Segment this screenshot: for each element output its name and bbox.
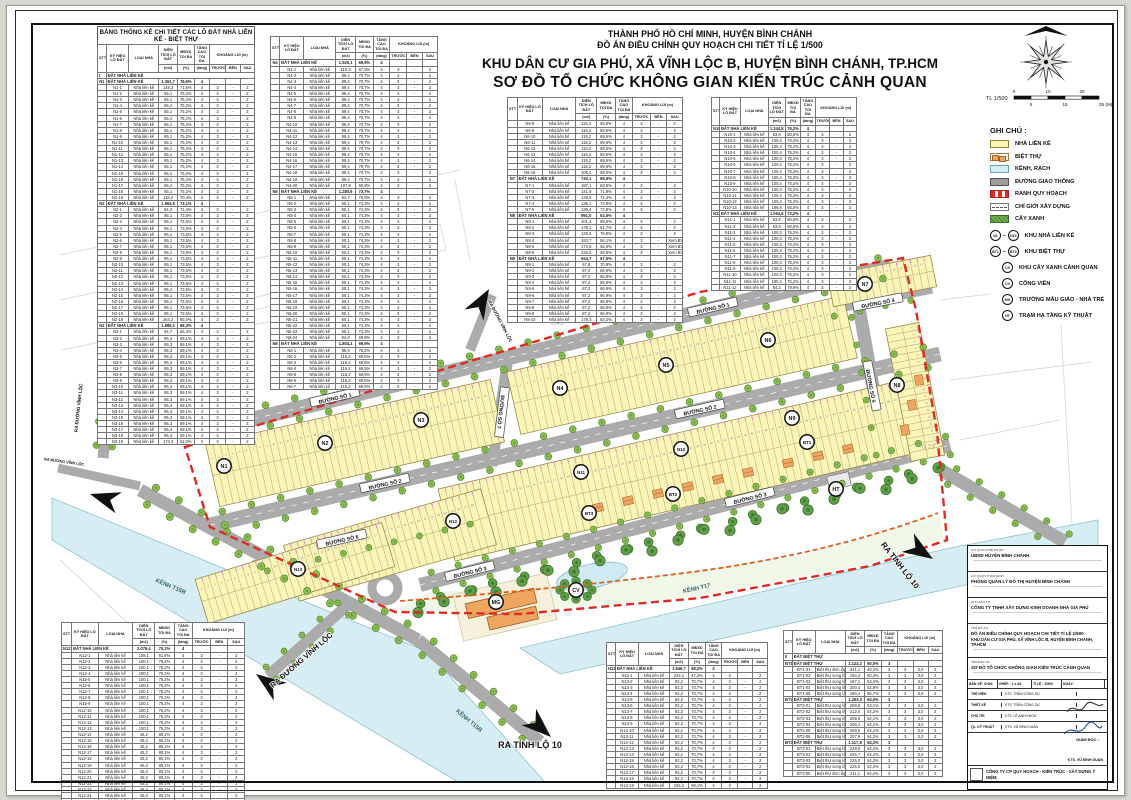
tree-icon: [219, 508, 226, 515]
legend-item-label: NHÀ LIÊN KẾ: [1015, 141, 1051, 147]
legend-badge-item: HTTRẠM HẠ TẦNG KỸ THUẬT: [990, 310, 1122, 321]
tree-icon: [866, 473, 872, 479]
tree-icon: [945, 481, 951, 487]
svg-text:N9: N9: [789, 416, 796, 422]
tree-icon: [466, 353, 473, 360]
tree-icon: [646, 331, 653, 338]
tree-icon: [699, 524, 709, 534]
tree-icon: [381, 608, 388, 615]
tree-icon: [595, 545, 601, 551]
legend-item-kenh: KÊNH, RẠCH: [990, 165, 1122, 173]
tree-icon: [235, 550, 242, 557]
legend-item-chigioi: CHỈ GIỚI XÂY DỰNG: [990, 203, 1122, 211]
svg-text:0: 0: [1013, 89, 1016, 94]
svg-text:20: 20: [1079, 89, 1085, 94]
legend-item-label: ĐƯỜNG GIAO THÔNG: [1015, 179, 1074, 185]
svg-text:N11: N11: [577, 470, 585, 475]
lot-table: STTKÝ HIỆU LÔ ĐẤTLOẠI NHÀDIỆN TÍCH LÔ ĐẤ…: [711, 97, 857, 291]
tree-icon: [244, 534, 251, 541]
legend-swatch-lienke-icon: [990, 140, 1009, 148]
legend-badge-circle: MG: [1002, 294, 1013, 305]
svg-text:15: 15: [1062, 102, 1068, 107]
node-badge-N8: N8: [890, 378, 904, 392]
tree-icon: [749, 405, 756, 412]
tree-icon: [734, 310, 741, 317]
tree-icon: [633, 433, 640, 440]
fine-print-line: [973, 649, 1102, 651]
legend-badge-circle: CV: [1002, 278, 1013, 289]
tree-icon: [281, 648, 287, 654]
tree-icon: [603, 439, 610, 446]
tree-icon: [264, 568, 270, 574]
villa-house-icon: [900, 424, 910, 435]
tree-icon: [394, 467, 401, 474]
tree-icon: [499, 719, 506, 726]
tree-icon: [834, 462, 840, 468]
table-row: N11-12Nhà liên kế54,379,9%43-2: [712, 284, 857, 290]
cadastral-line: [960, 420, 1060, 440]
tree-icon: [976, 479, 982, 485]
tree-icon: [703, 516, 709, 522]
svg-text:BT1: BT1: [803, 440, 812, 445]
tree-icon: [253, 522, 260, 529]
tree-icon: [763, 303, 770, 310]
tree-icon: [803, 505, 813, 515]
svg-text:N12: N12: [449, 519, 458, 524]
tree-icon: [785, 494, 791, 500]
table-title: BẢNG THỐNG KÊ CHI TIẾT CÁC LÔ ĐẤT NHÀ LI…: [97, 26, 255, 44]
compass-rose-icon: TL 1/500 0102051525 (M): [984, 24, 1116, 114]
tree-icon: [450, 655, 457, 662]
tree-icon: [482, 446, 489, 453]
tree-icon: [143, 501, 150, 508]
tree-icon: [471, 373, 478, 380]
exit-label: RA ĐƯỜNG VĨNH LỘC: [71, 382, 83, 432]
tree-icon: [920, 459, 926, 465]
company-logo: [970, 768, 983, 781]
tree-icon: [267, 422, 274, 429]
tree-icon: [152, 484, 159, 491]
svg-text:MG: MG: [492, 600, 501, 606]
node-badge-N10: N10: [674, 442, 688, 456]
tree-icon: [370, 494, 377, 501]
tree-icon: [777, 504, 787, 514]
tree-icon: [673, 535, 683, 545]
lot-table: STTKÝ HIỆU LÔ ĐẤTLOẠI NHÀDIỆN TÍCH LÔ ĐẤ…: [783, 630, 943, 777]
tree-icon: [326, 600, 333, 607]
tree-icon: [588, 345, 595, 352]
scale-note: TL 1/500: [986, 96, 1008, 102]
legend-badge-item: CVCÔNG VIÊN: [990, 278, 1122, 289]
tree-icon: [662, 426, 669, 433]
tree-icon: [517, 576, 527, 586]
tree-icon: [282, 515, 289, 522]
tree-icon: [779, 398, 786, 405]
legend-badge-label: TRƯỜNG MẪU GIÁO - NHÀ TRẺ: [1019, 297, 1104, 303]
tree-icon: [317, 616, 323, 622]
node-badge-N6: N6: [761, 333, 775, 347]
title-block: CƠ QUAN PHÊ DUYỆTUBND HUYỆN BÌNH CHÁNHCƠ…: [967, 545, 1108, 790]
tree-icon: [583, 592, 591, 600]
tree-icon: [455, 562, 461, 568]
tree-icon: [907, 473, 917, 483]
tree-icon: [325, 408, 332, 415]
tree-icon: [198, 509, 205, 516]
tree-icon: [391, 539, 397, 545]
legend-badge-item: CXKHU CÂY XANH CẢNH QUAN: [990, 262, 1122, 273]
tree-icon: [442, 527, 448, 533]
tree-icon: [622, 537, 628, 543]
tree-icon: [221, 521, 228, 528]
tree-icon: [751, 514, 761, 524]
tree-icon: [725, 525, 735, 535]
tree-icon: [745, 385, 752, 392]
tree-icon: [354, 401, 361, 408]
header-project-name: KHU DÂN CƯ GIA PHÚ, XÃ VĨNH LỘC B, HUYỆN…: [455, 56, 965, 71]
tree-icon: [281, 575, 288, 582]
tree-icon: [858, 369, 864, 375]
tree-icon: [315, 556, 321, 562]
legend-badge-label: KHU CÂY XANH CẢNH QUAN: [1019, 265, 1098, 271]
legend-badge-circle: BT3: [1008, 246, 1019, 257]
lot-table: STTKÝ HIỆU LÔ ĐẤTLOẠI NHÀDIỆN TÍCH LÔ ĐẤ…: [507, 97, 683, 323]
tree-icon: [516, 460, 523, 467]
tree-icon: [569, 426, 576, 433]
tree-icon: [758, 502, 764, 508]
tree-icon: [800, 497, 809, 506]
tree-icon: [1066, 531, 1072, 537]
header-project-type-line: ĐỒ ÁN ĐIỀU CHỈNH QUY HOẠCH CHI TIẾT TỈ L…: [455, 40, 965, 50]
node-badge-N1: N1: [217, 459, 231, 473]
svg-text:10: 10: [1045, 89, 1051, 94]
fine-print-line: [973, 612, 1102, 614]
legend-item-duong: ĐƯỜNG GIAO THÔNG: [990, 178, 1122, 186]
node-badge-N2: N2: [318, 436, 332, 450]
tree-icon: [792, 296, 799, 303]
tree-icon: [384, 394, 391, 401]
tree-icon: [599, 419, 606, 426]
legend-badge-item: MGTRƯỜNG MẪU GIÁO - NHÀ TRẺ: [990, 294, 1122, 305]
tree-icon: [559, 352, 566, 359]
drawing-header: THÀNH PHỐ HỒ CHÍ MINH, HUYỆN BÌNH CHÁNH …: [455, 29, 965, 92]
tree-icon: [628, 412, 635, 419]
svg-text:N7: N7: [862, 282, 869, 288]
lot-statistics-table-n10-n11: STTKÝ HIỆU LÔ ĐẤTLOẠI NHÀDIỆN TÍCH LÔ ĐẤ…: [711, 97, 857, 291]
title-block-label: CHỦ ĐẦU TƯ: [971, 600, 1104, 604]
tree-icon: [967, 494, 973, 500]
table-row: N9-10Nhà liên kế179,362,2%43-2: [508, 316, 683, 322]
title-block-label: CƠ QUAN PHÊ DUYỆT: [971, 548, 1104, 552]
tree-icon: [617, 338, 624, 345]
legend-badge-circle: N13: [1008, 230, 1019, 241]
tree-icon: [863, 397, 869, 403]
svg-text:N8: N8: [894, 383, 901, 389]
lot-statistics-table-n6-n9: STTKÝ HIỆU LÔ ĐẤTLOẠI NHÀDIỆN TÍCH LÔ ĐẤ…: [507, 97, 683, 323]
svg-text:N13: N13: [294, 567, 303, 572]
tree-icon: [644, 512, 650, 518]
tree-icon: [715, 392, 722, 399]
lot-table: STTKÝ HIỆU LÔ ĐẤTLOẠI NHÀDIỆN TÍCH LÔ ĐẤ…: [61, 622, 245, 800]
legend-badge-label: CÔNG VIÊN: [1019, 281, 1050, 287]
tree-icon: [467, 521, 473, 527]
tree-icon: [395, 637, 402, 644]
title-block-row: CƠ QUAN THẨM ĐỊNHPHÒNG QUẢN LÝ ĐÔ THỊ HU…: [968, 572, 1107, 598]
company-footer: CÔNG TY CP QUY HOẠCH - KIẾN TRÚC - XÂY D…: [968, 766, 1107, 783]
tree-icon: [893, 466, 899, 472]
cadastral-line: [950, 362, 1092, 380]
lot-statistics-table-n12: STTKÝ HIỆU LÔ ĐẤTLOẠI NHÀDIỆN TÍCH LÔ ĐẤ…: [61, 622, 245, 800]
node-badge-N11: N11: [574, 465, 588, 479]
tree-icon: [831, 313, 837, 319]
tree-icon: [428, 481, 435, 488]
tree-icon: [837, 385, 844, 392]
tree-icon: [954, 466, 960, 472]
tree-icon: [536, 540, 542, 546]
tree-icon: [459, 685, 466, 692]
parcel-number-label: 0,45: [112, 481, 125, 488]
tree-icon: [277, 494, 284, 501]
tree-icon: [699, 498, 705, 504]
tree-icon: [500, 366, 507, 373]
tree-icon: [482, 555, 488, 561]
tree-icon: [336, 481, 343, 488]
legend-item-label: KÊNH, RẠCH: [1015, 166, 1050, 172]
title-block-info-row: BẢN VẼ: CH04GHÉP : 1 x A0TỈ LỆ : 1/500NG…: [968, 680, 1107, 689]
legend-item-lienke: NHÀ LIÊN KẾ: [990, 140, 1122, 148]
title-block-staff-row: THỂ HIỆNKTS. TRẦN CÔNG SỰ: [968, 689, 1107, 700]
node-badge-HT: HT: [829, 482, 843, 496]
tree-icon: [428, 569, 434, 575]
tree-icon: [868, 425, 874, 431]
tree-icon: [647, 546, 657, 556]
legend-badge-label: TRẠM HẠ TẦNG KỸ THUẬT: [1019, 313, 1092, 319]
tree-icon: [1043, 518, 1049, 524]
tree-icon: [486, 467, 493, 474]
node-badge-MG: MG: [489, 595, 503, 609]
tree-icon: [726, 490, 732, 496]
tree-icon: [854, 342, 860, 348]
legend-badge-item: N1–N13KHU NHÀ LIÊN KẾ: [990, 230, 1122, 241]
compass-and-scale: TL 1/500 0102051525 (M): [984, 24, 1116, 119]
tree-icon: [416, 533, 422, 539]
tree-icon: [891, 351, 898, 358]
tree-icon: [457, 474, 464, 481]
signature-icon: [1062, 720, 1104, 738]
tree-icon: [479, 702, 486, 709]
tree-icon: [460, 580, 466, 586]
legend-item-label: CÂY XANH: [1015, 216, 1044, 222]
tree-icon: [248, 501, 255, 508]
svg-text:CV: CV: [572, 588, 580, 594]
tree-icon: [880, 275, 887, 282]
tree-icon: [849, 314, 855, 320]
title-block-row: TÊN ĐỒ ÁNĐỒ ÁN ĐIỀU CHỈNH QUY HOẠCH CHI …: [968, 624, 1107, 658]
signature-icon: [1065, 700, 1107, 718]
title-block-value: CÔNG TY TNHH XÂY DỰNG KINH DOANH NHÀ GIA…: [971, 605, 1104, 610]
lot-statistics-table-n4-n6: STTKÝ HIỆU LÔ ĐẤTLOẠI NHÀDIỆN TÍCH LÔ ĐẤ…: [270, 36, 438, 390]
tree-icon: [657, 405, 664, 412]
legend-swatch-list: NHÀ LIÊN KẾBIỆT THỰKÊNH, RẠCHĐƯỜNG GIAO …: [990, 140, 1122, 223]
tree-icon: [452, 453, 459, 460]
svg-text:25 (M): 25 (M): [1099, 102, 1113, 107]
tree-icon: [888, 447, 894, 453]
tree-icon: [345, 612, 351, 618]
node-badge-N4: N4: [553, 381, 567, 395]
tree-icon: [530, 359, 537, 366]
svg-text:N3: N3: [418, 418, 425, 424]
legend-item-bietthu: BIỆT THỰ: [990, 153, 1122, 161]
tree-icon: [488, 579, 497, 588]
villa-house-icon: [907, 399, 917, 410]
title-block-label: TÊN BẢN VẼ: [971, 660, 1104, 664]
legend-item-ranh: RANH QUY HOẠCH: [990, 190, 1122, 198]
title-block-label: CƠ QUAN THẨM ĐỊNH: [971, 574, 1104, 578]
title-block-value2: KHU DÂN CƯ GIA PHÚ, XÃ VĨNH LỘC B, HUYỆN…: [971, 637, 1104, 647]
svg-text:BT3: BT3: [585, 511, 594, 516]
legend-item-label: BIỆT THỰ: [1015, 154, 1041, 160]
tree-icon: [311, 508, 318, 515]
fine-print-line: [973, 586, 1102, 588]
tree-icon: [808, 392, 815, 399]
legend-badge-label: KHU NHÀ LIÊN KẾ: [1025, 233, 1074, 239]
lot-table: STTKÝ HIỆU LÔ ĐẤTLOẠI NHÀDIỆN TÍCH LÔ ĐẤ…: [97, 44, 255, 445]
tree-icon: [1034, 533, 1040, 539]
legend-swatch-kenh-icon: [990, 165, 1009, 173]
node-badge-N12: N12: [446, 514, 460, 528]
tree-icon: [875, 255, 882, 262]
title-block-row: TÊN BẢN VẼSƠ ĐỒ TỔ CHỨC KHÔNG GIAN KIẾN …: [968, 658, 1107, 680]
tree-icon: [672, 505, 678, 511]
tree-icon: [676, 523, 682, 529]
tree-icon: [399, 487, 406, 494]
tree-icon: [262, 402, 269, 409]
tree-icon: [291, 395, 298, 402]
tree-icon: [509, 548, 515, 554]
legend-swatch-ranh-icon: [990, 190, 1009, 198]
title-block-row: CƠ QUAN PHÊ DUYỆTUBND HUYỆN BÌNH CHÁNH: [968, 546, 1107, 572]
tree-icon: [895, 371, 902, 378]
fine-print-line: [973, 560, 1102, 562]
lot-statistics-table-n13: STTKÝ HIỆU LÔ ĐẤTLOẠI NHÀDIỆN TÍCH LÔ ĐẤ…: [606, 642, 768, 789]
tree-icon: [470, 671, 477, 678]
title-block-info-cell: BẢN VẼ: CH04: [968, 680, 998, 688]
lot-table: STTKÝ HIỆU LÔ ĐẤTLOẠI NHÀDIỆN TÍCH LÔ ĐẤ…: [270, 36, 438, 390]
tree-icon: [299, 632, 305, 638]
legend-panel: GHI CHÚ : NHÀ LIÊN KẾBIỆT THỰKÊNH, RẠCHĐ…: [990, 126, 1122, 326]
tree-icon: [590, 526, 596, 532]
tree-icon: [855, 483, 865, 493]
tree-icon: [1012, 520, 1018, 526]
tree-icon: [999, 492, 1005, 498]
legend-swatch-cayxanh-icon: [990, 215, 1009, 223]
tree-icon: [621, 545, 631, 555]
tree-icon: [267, 546, 274, 553]
tree-icon: [212, 538, 219, 545]
title-block-info-cell: GHÉP : 1 x A0: [998, 680, 1032, 688]
table-row: N6-7Nhà liên kế115,269,5%43-2: [271, 384, 438, 390]
tree-icon: [545, 453, 552, 460]
tree-icon: [540, 433, 547, 440]
tree-icon: [686, 398, 693, 405]
node-badge-N9: N9: [785, 411, 799, 425]
tree-icon: [442, 380, 449, 387]
company-name: CÔNG TY CP QUY HOẠCH - KIẾN TRÚC - XÂY D…: [986, 769, 1105, 779]
tree-icon: [304, 587, 311, 594]
tree-icon: [439, 669, 446, 676]
tree-icon: [675, 324, 682, 331]
road: [58, 468, 140, 486]
tree-icon: [780, 476, 786, 482]
title-block-info-cell: NGÀY:: [1062, 680, 1105, 688]
tree-icon: [306, 487, 313, 494]
tree-icon: [510, 705, 517, 712]
tree-icon: [372, 624, 379, 631]
exit-label: RA TỈNH LỘ 10: [498, 739, 562, 750]
tree-icon: [572, 558, 581, 567]
tree-icon: [617, 519, 623, 525]
tree-icon: [340, 550, 346, 556]
lot-statistics-table-n1-n3: BẢNG THỐNG KÊ CHI TIẾT CÁC LÔ ĐẤT NHÀ LI…: [97, 26, 255, 445]
legend-item-cayxanh: CÂY XANH: [990, 215, 1122, 223]
villa-house-icon: [914, 374, 924, 385]
tree-icon: [166, 513, 173, 520]
svg-text:5: 5: [1030, 102, 1033, 107]
tree-icon: [989, 507, 995, 513]
tree-icon: [873, 452, 879, 458]
tree-icon: [595, 555, 605, 565]
node-badge-N13: N13: [291, 562, 305, 576]
tree-icon: [803, 371, 810, 378]
tree-icon: [574, 446, 581, 453]
tree-icon: [644, 538, 653, 547]
tree-icon: [419, 652, 426, 659]
legend-badge-circle: BT1: [990, 246, 1001, 257]
node-badge-N5: N5: [659, 358, 673, 372]
tree-icon: [705, 317, 712, 324]
title-block-value: ĐỒ ÁN ĐIỀU CHỈNH QUY HOẠCH CHI TIẾT TỈ L…: [971, 631, 1104, 636]
tree-icon: [915, 440, 921, 446]
svg-text:N2: N2: [322, 441, 329, 447]
tree-icon: [175, 497, 182, 504]
svg-text:N1: N1: [221, 464, 228, 470]
legend-badge-label: KHU BIỆT THỰ: [1025, 249, 1065, 255]
svg-text:N10: N10: [677, 447, 686, 452]
tree-icon: [884, 476, 893, 485]
legend-swatch-bietthu-icon: [990, 153, 1009, 161]
node-badge-BT2: BT2: [666, 487, 680, 501]
table-row: N3-19Nhà liên kế174,361,0%43-2: [98, 439, 255, 445]
tree-icon: [933, 463, 943, 473]
svg-text:HT: HT: [832, 487, 840, 493]
tree-icon: [365, 474, 372, 481]
scale-bar: 0102051525 (M): [1013, 89, 1113, 107]
road: [941, 470, 1065, 542]
tree-icon: [404, 620, 411, 627]
tree-icon: [335, 600, 341, 606]
tree-icon: [861, 455, 867, 461]
tree-icon: [569, 566, 579, 576]
node-badge-BT1: BT1: [800, 435, 814, 449]
tree-icon: [881, 484, 891, 494]
svg-text:N5: N5: [663, 363, 670, 369]
tree-icon: [423, 460, 430, 467]
title-block-value: PHÒNG QUẢN LÝ ĐÔ THỊ HUYỆN BÌNH CHÁNH: [971, 579, 1104, 584]
tree-icon: [543, 565, 553, 575]
tree-icon: [296, 415, 303, 422]
legend-title: GHI CHÚ :: [990, 126, 1122, 135]
legend-badge-circle: CX: [1002, 262, 1013, 273]
tree-icon: [258, 563, 265, 570]
